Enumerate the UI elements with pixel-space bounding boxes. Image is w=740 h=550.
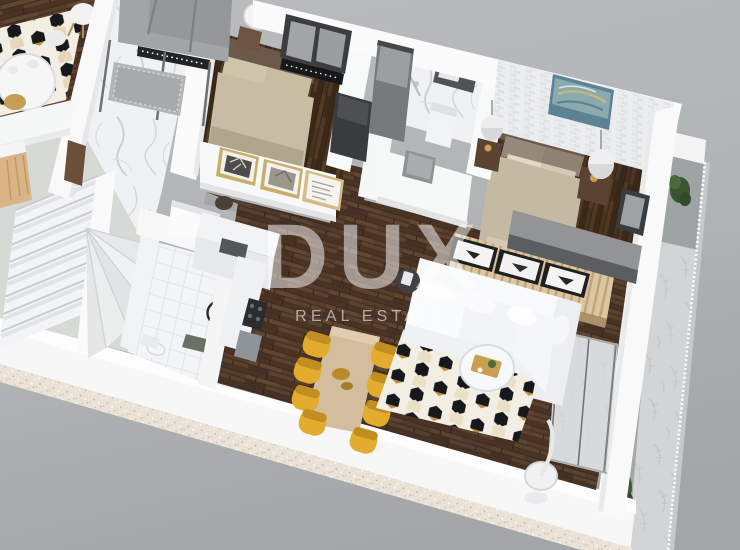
svg-text:DUX: DUX [262, 206, 486, 308]
svg-text:REAL ESTATE: REAL ESTATE [295, 308, 447, 325]
